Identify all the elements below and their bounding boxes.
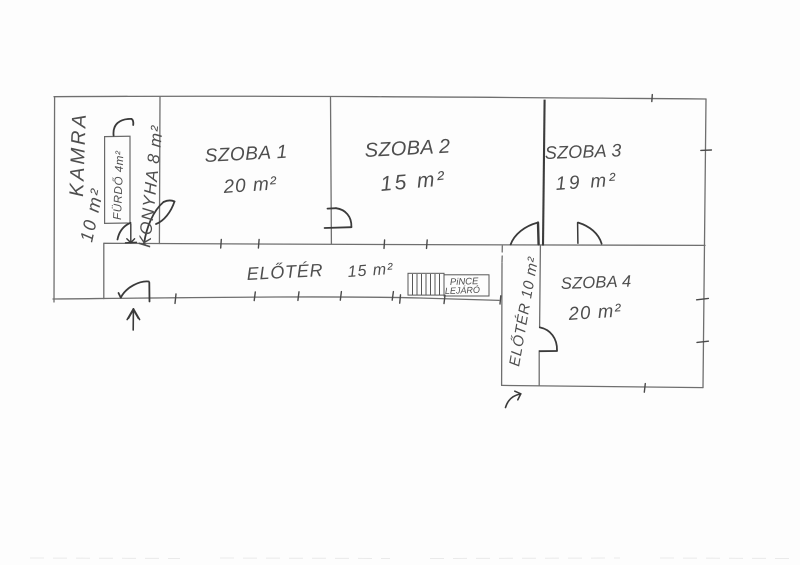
svg-text:SZOBA 1: SZOBA 1 [204,142,288,167]
svg-text:20 m²: 20 m² [222,173,278,198]
svg-text:15 m²: 15 m² [347,261,394,281]
svg-text:SZOBA 4: SZOBA 4 [561,273,632,293]
svg-text:20 m²: 20 m² [567,299,623,324]
svg-text:ELŐTÉR: ELŐTÉR [246,259,324,284]
svg-text:SZOBA 2: SZOBA 2 [364,136,451,162]
svg-text:LEJÁRÓ: LEJÁRÓ [445,285,480,296]
svg-text:19 m²: 19 m² [555,170,619,195]
svg-text:SZOBA 3: SZOBA 3 [544,140,621,163]
svg-text:KAMRA: KAMRA [66,111,91,197]
